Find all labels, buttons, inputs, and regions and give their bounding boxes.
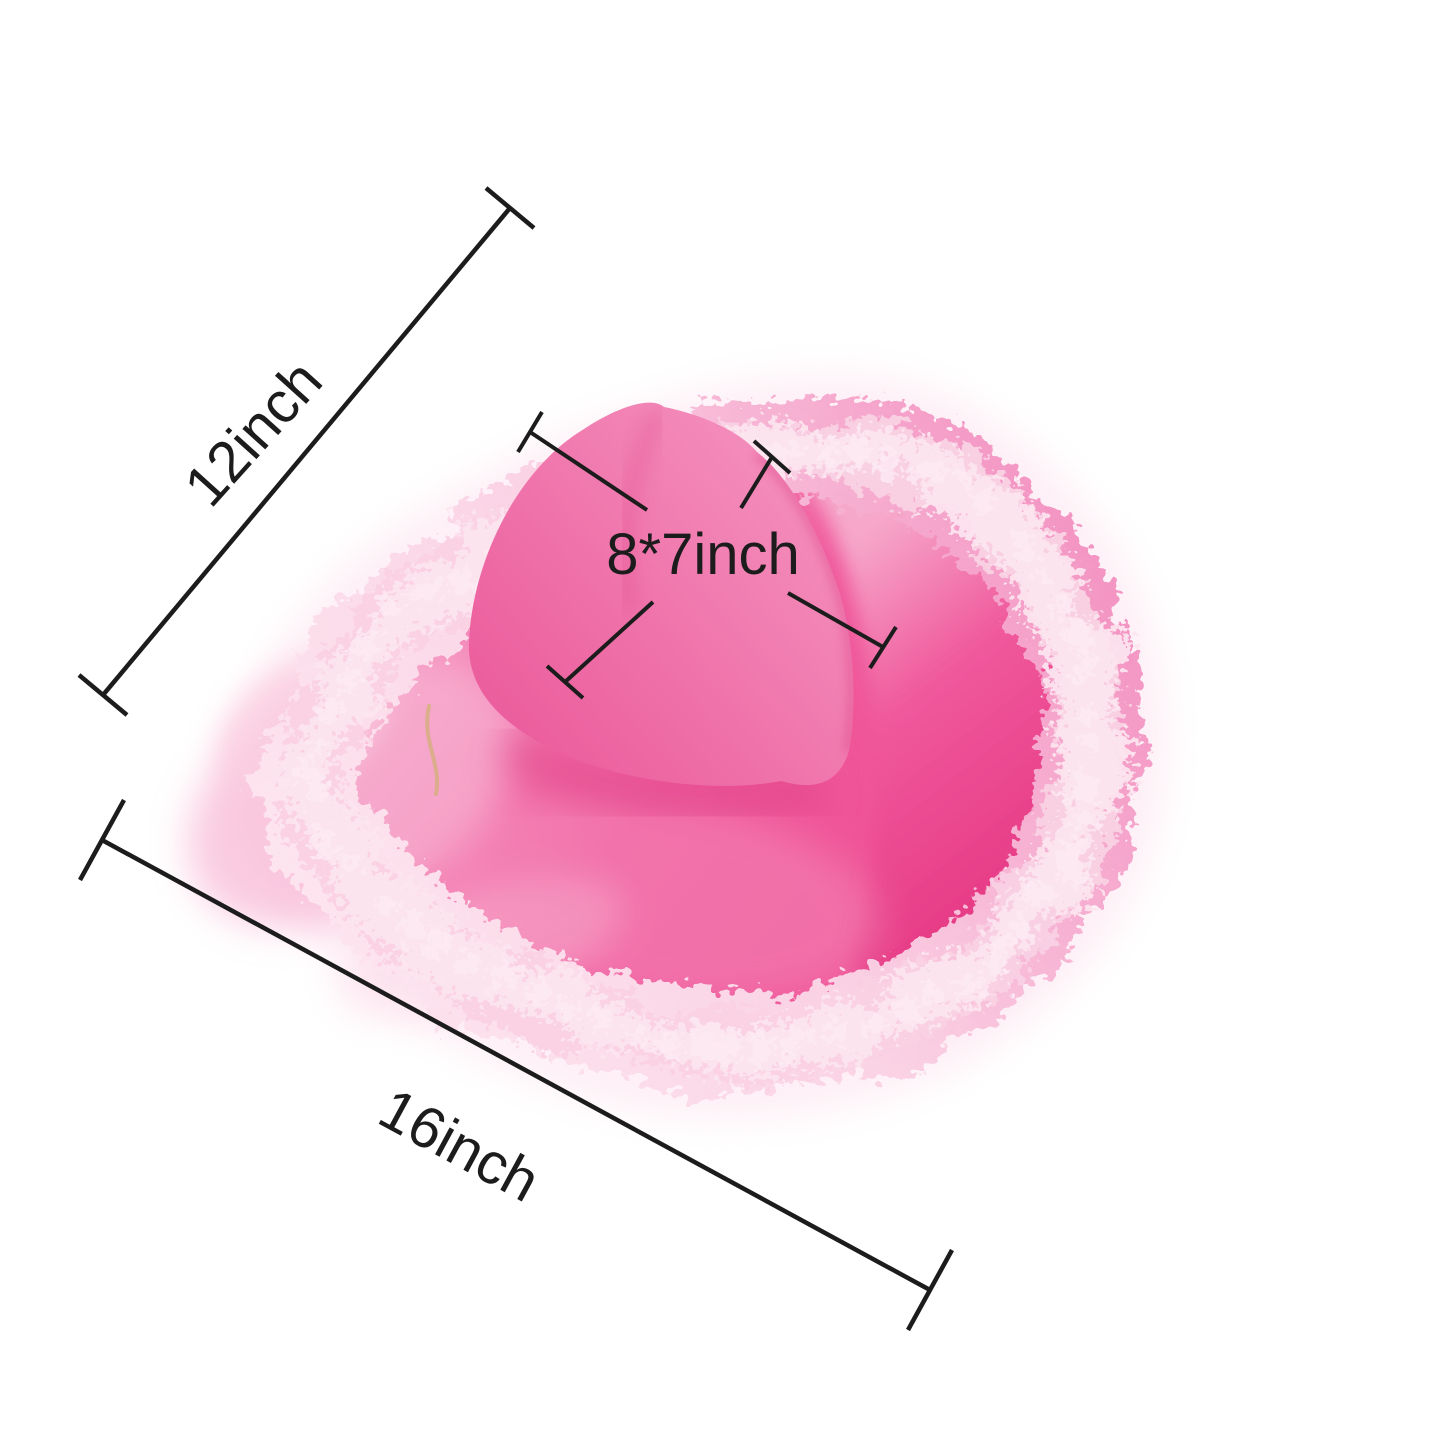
dimension-label-12inch: 12inch — [172, 348, 335, 519]
dimension-tick — [486, 188, 534, 228]
dimension-label-16inch: 16inch — [369, 1076, 550, 1215]
hat-dimension-diagram: 12inch 16inch 8*7inch — [0, 0, 1445, 1445]
dimension-tick — [518, 412, 542, 452]
hat-illustration — [138, 403, 1098, 1050]
dimension-tick — [79, 675, 127, 715]
dimension-label-crown: 8*7inch — [606, 522, 799, 587]
product-dimension-image: 12inch 16inch 8*7inch — [0, 0, 1445, 1445]
dimension-tick — [80, 800, 124, 880]
dimension-tick — [908, 1250, 952, 1330]
